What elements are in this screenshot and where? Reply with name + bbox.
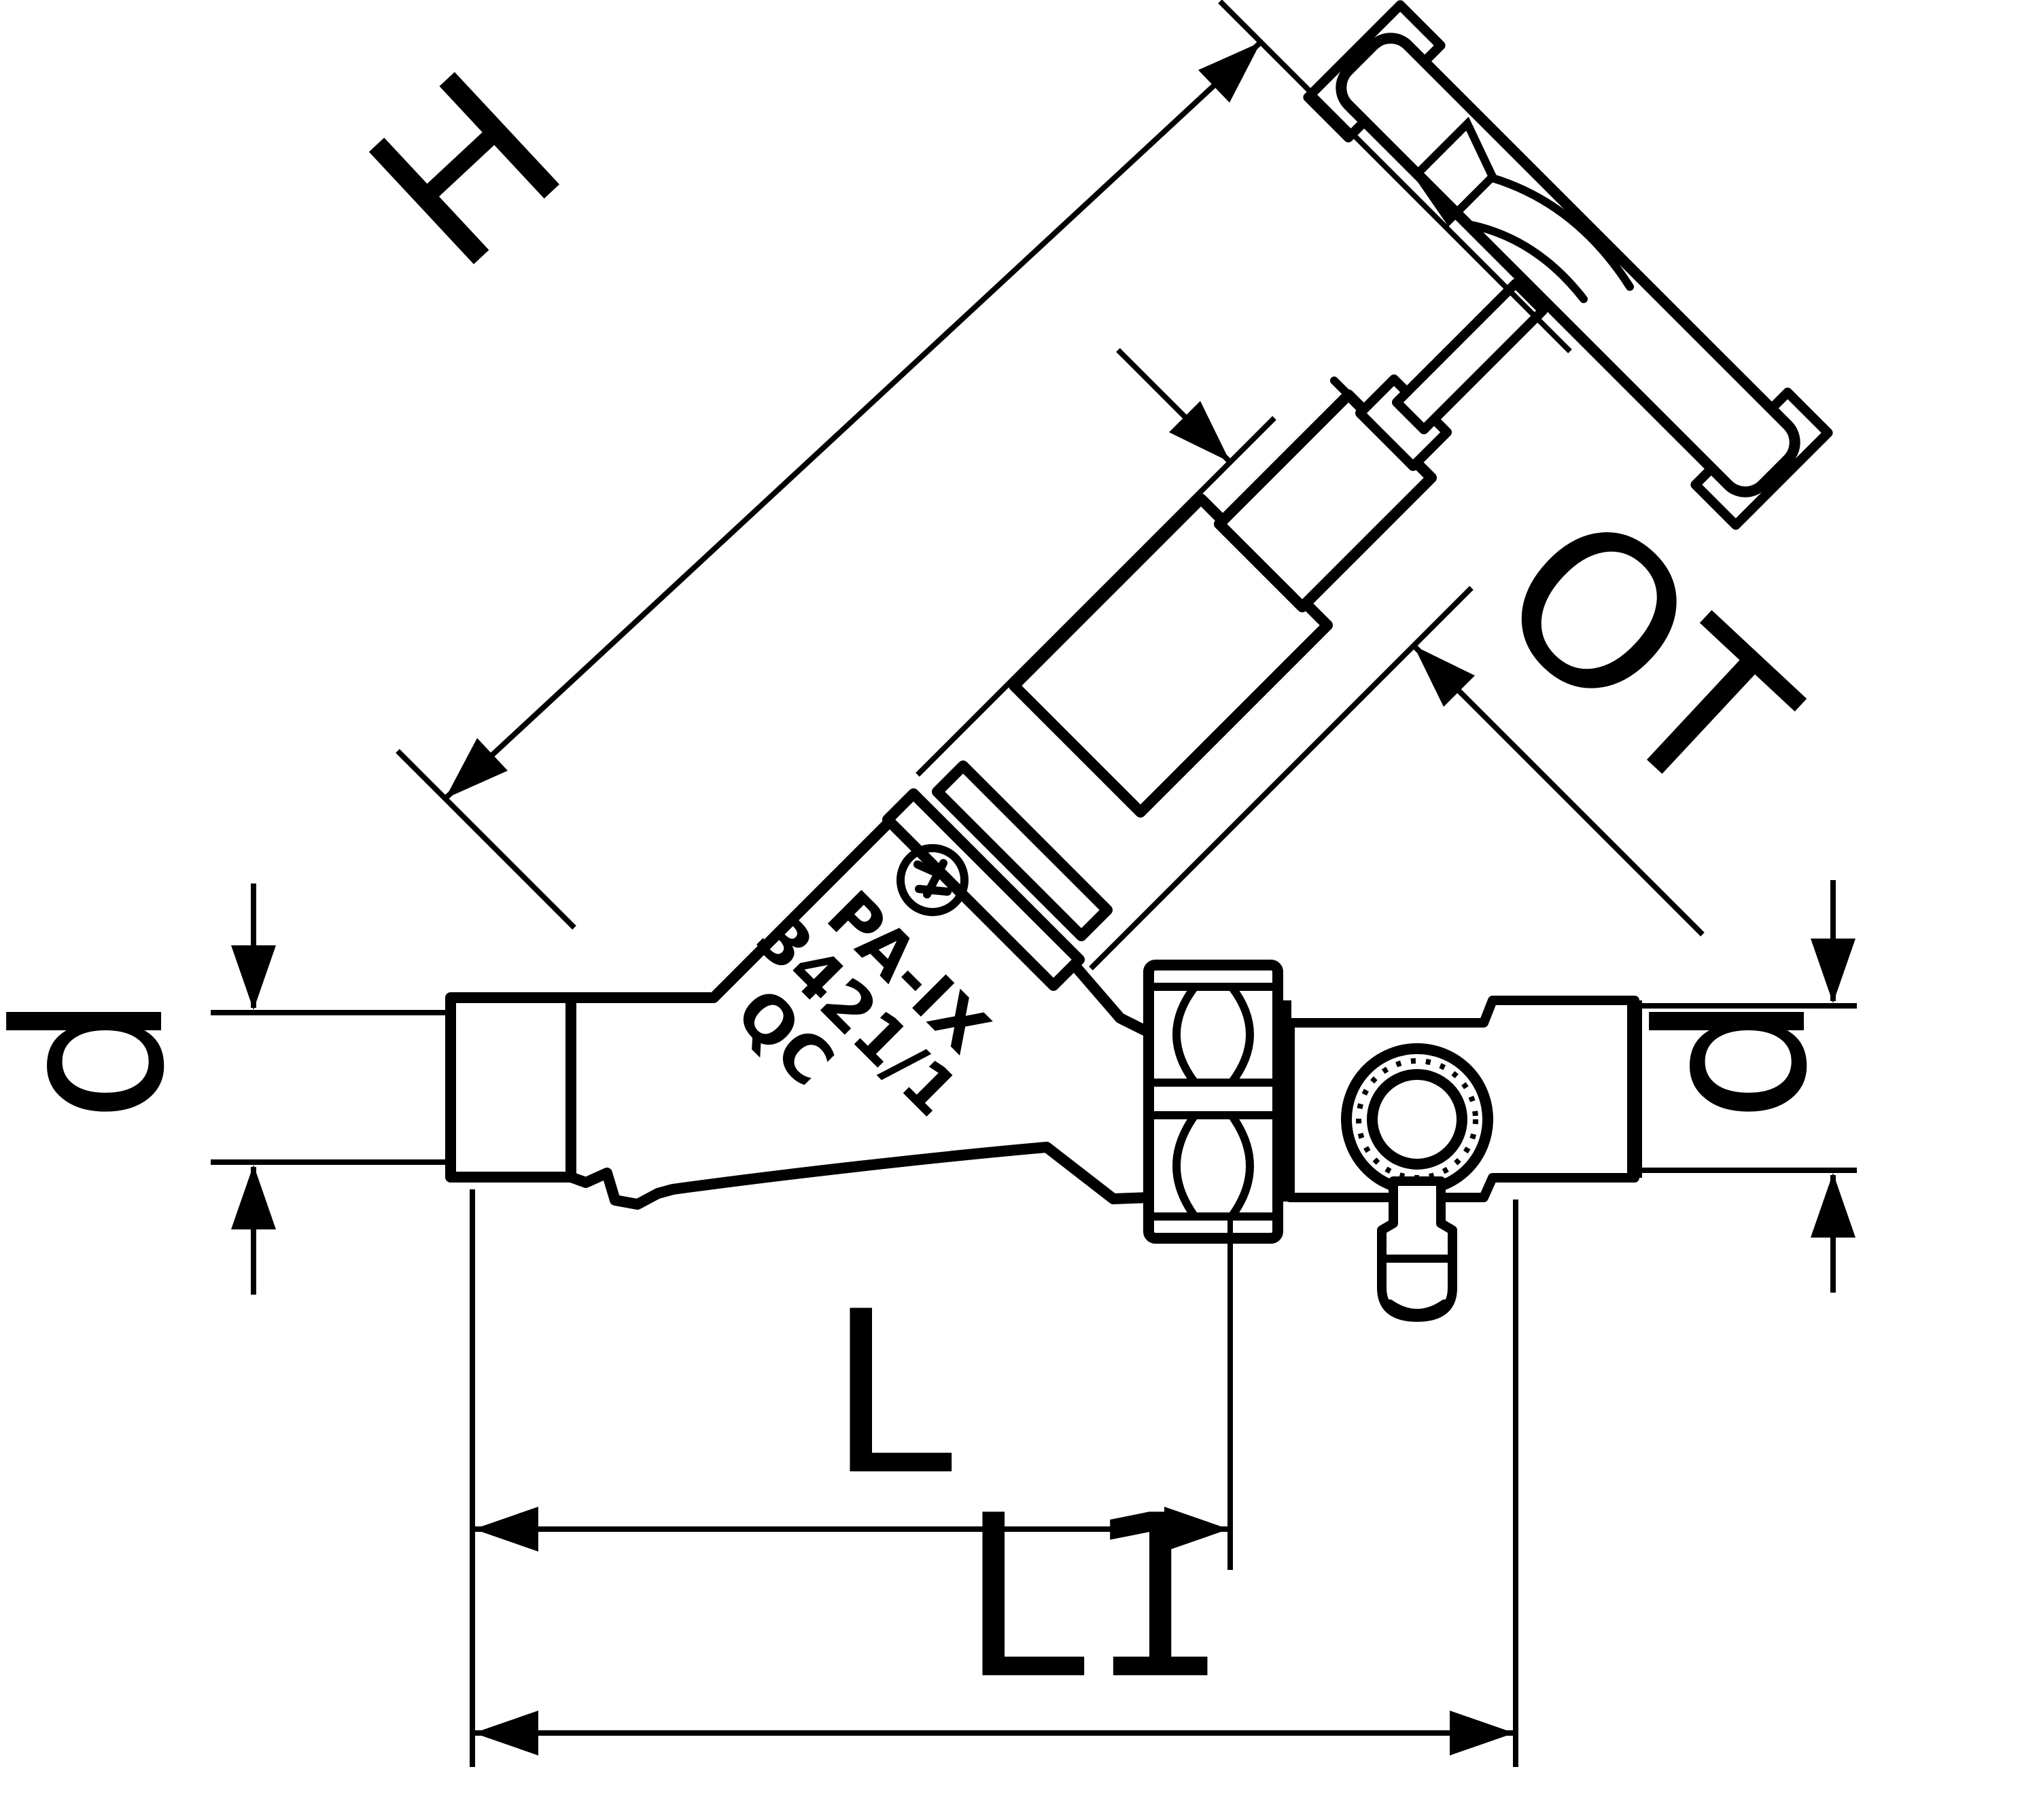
- dim-d-right: d: [1615, 880, 1857, 1293]
- drain-valve: [1346, 1049, 1488, 1190]
- dim-d-right-label: d: [1615, 994, 1852, 1123]
- dim-OT-label: OT: [1452, 467, 1836, 850]
- dim-H-label: H: [326, 28, 609, 315]
- dim-L1-label: L1: [960, 1467, 1228, 1728]
- dim-d-left-label: d: [0, 994, 209, 1123]
- dim-L-label: L: [828, 1263, 954, 1524]
- dim-L1: L1: [472, 1200, 1516, 1767]
- left-pipe-end: [451, 998, 571, 1177]
- technical-drawing-page: PA-IX 3421/1 QC H OT d: [0, 0, 2039, 1820]
- valve-technical-drawing: PA-IX 3421/1 QC H OT d: [0, 0, 2039, 1820]
- hose-nipple: [1382, 1181, 1452, 1317]
- dim-d-left: d: [0, 883, 451, 1295]
- union-nut: [1149, 965, 1278, 1238]
